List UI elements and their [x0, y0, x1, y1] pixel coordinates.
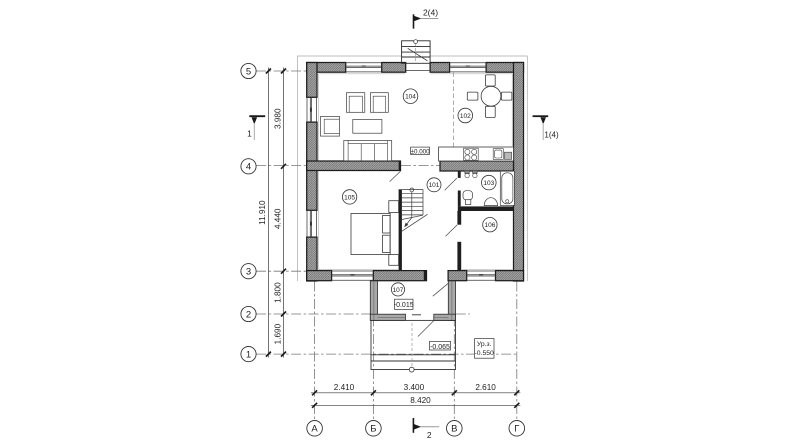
svg-text:3.400: 3.400 — [404, 383, 425, 392]
svg-text:104: 104 — [405, 94, 416, 101]
svg-text:105: 105 — [344, 194, 355, 201]
svg-text:8.420: 8.420 — [410, 396, 431, 405]
svg-text:-0.065: -0.065 — [430, 344, 450, 351]
svg-text:1(4): 1(4) — [544, 131, 559, 140]
svg-text:-0.550: -0.550 — [475, 350, 494, 357]
svg-text:В: В — [451, 424, 457, 435]
svg-text:106: 106 — [484, 222, 495, 229]
svg-text:2: 2 — [246, 309, 251, 320]
svg-text:Б: Б — [370, 424, 376, 435]
svg-text:103: 103 — [483, 180, 494, 187]
svg-text:2.410: 2.410 — [334, 383, 355, 392]
svg-text:Г: Г — [514, 424, 519, 435]
svg-text:107: 107 — [393, 287, 404, 294]
svg-text:1: 1 — [247, 129, 252, 139]
svg-text:-0.015: -0.015 — [394, 302, 414, 309]
svg-text:±0.000: ±0.000 — [411, 148, 430, 155]
svg-text:2(4): 2(4) — [423, 7, 438, 17]
svg-text:4.440: 4.440 — [273, 208, 282, 229]
svg-text:3.980: 3.980 — [273, 108, 282, 129]
svg-text:4: 4 — [246, 162, 251, 173]
svg-text:102: 102 — [460, 113, 471, 120]
svg-text:11.910: 11.910 — [258, 200, 267, 225]
svg-text:Ур.з.: Ур.з. — [477, 341, 492, 348]
svg-text:101: 101 — [429, 182, 440, 189]
svg-text:А: А — [311, 424, 318, 435]
svg-text:1: 1 — [246, 350, 251, 361]
svg-text:3: 3 — [246, 267, 251, 278]
svg-text:2.610: 2.610 — [475, 383, 496, 392]
svg-text:1.690: 1.690 — [273, 323, 282, 344]
svg-text:2: 2 — [427, 430, 432, 440]
svg-text:5: 5 — [246, 66, 251, 77]
svg-text:1.800: 1.800 — [273, 282, 282, 303]
